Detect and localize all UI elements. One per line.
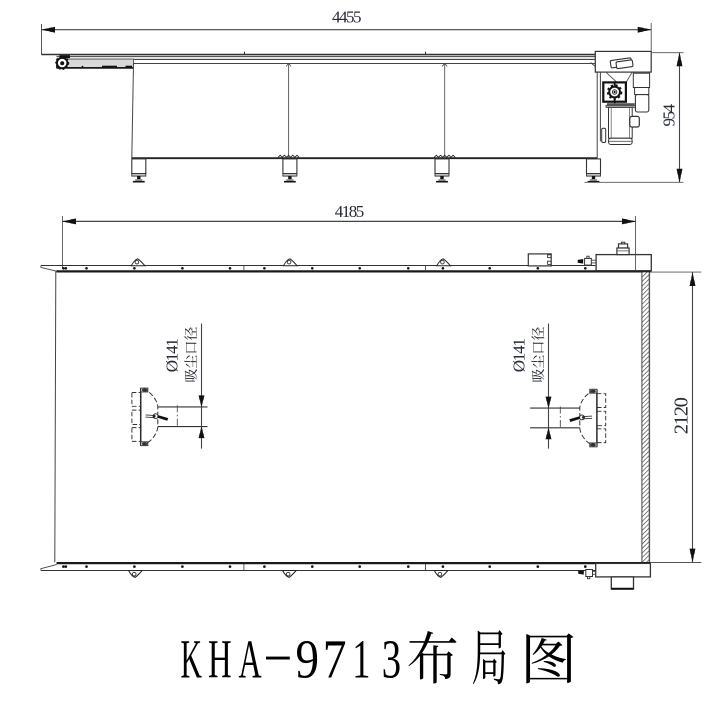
svg-text:9: 9 [296, 629, 320, 690]
svg-text:7: 7 [323, 629, 347, 690]
svg-text:3: 3 [382, 629, 401, 690]
svg-text:H: H [208, 629, 232, 690]
svg-text:Ø141: Ø141 [163, 339, 182, 373]
svg-text:954: 954 [660, 104, 679, 127]
svg-text:2120: 2120 [670, 397, 692, 434]
svg-text:Ø141: Ø141 [510, 339, 529, 373]
svg-text:4455: 4455 [332, 7, 361, 26]
svg-text:K: K [181, 628, 202, 690]
svg-text:4185: 4185 [335, 202, 364, 221]
svg-text:1: 1 [352, 629, 370, 690]
svg-text:A: A [239, 629, 262, 690]
